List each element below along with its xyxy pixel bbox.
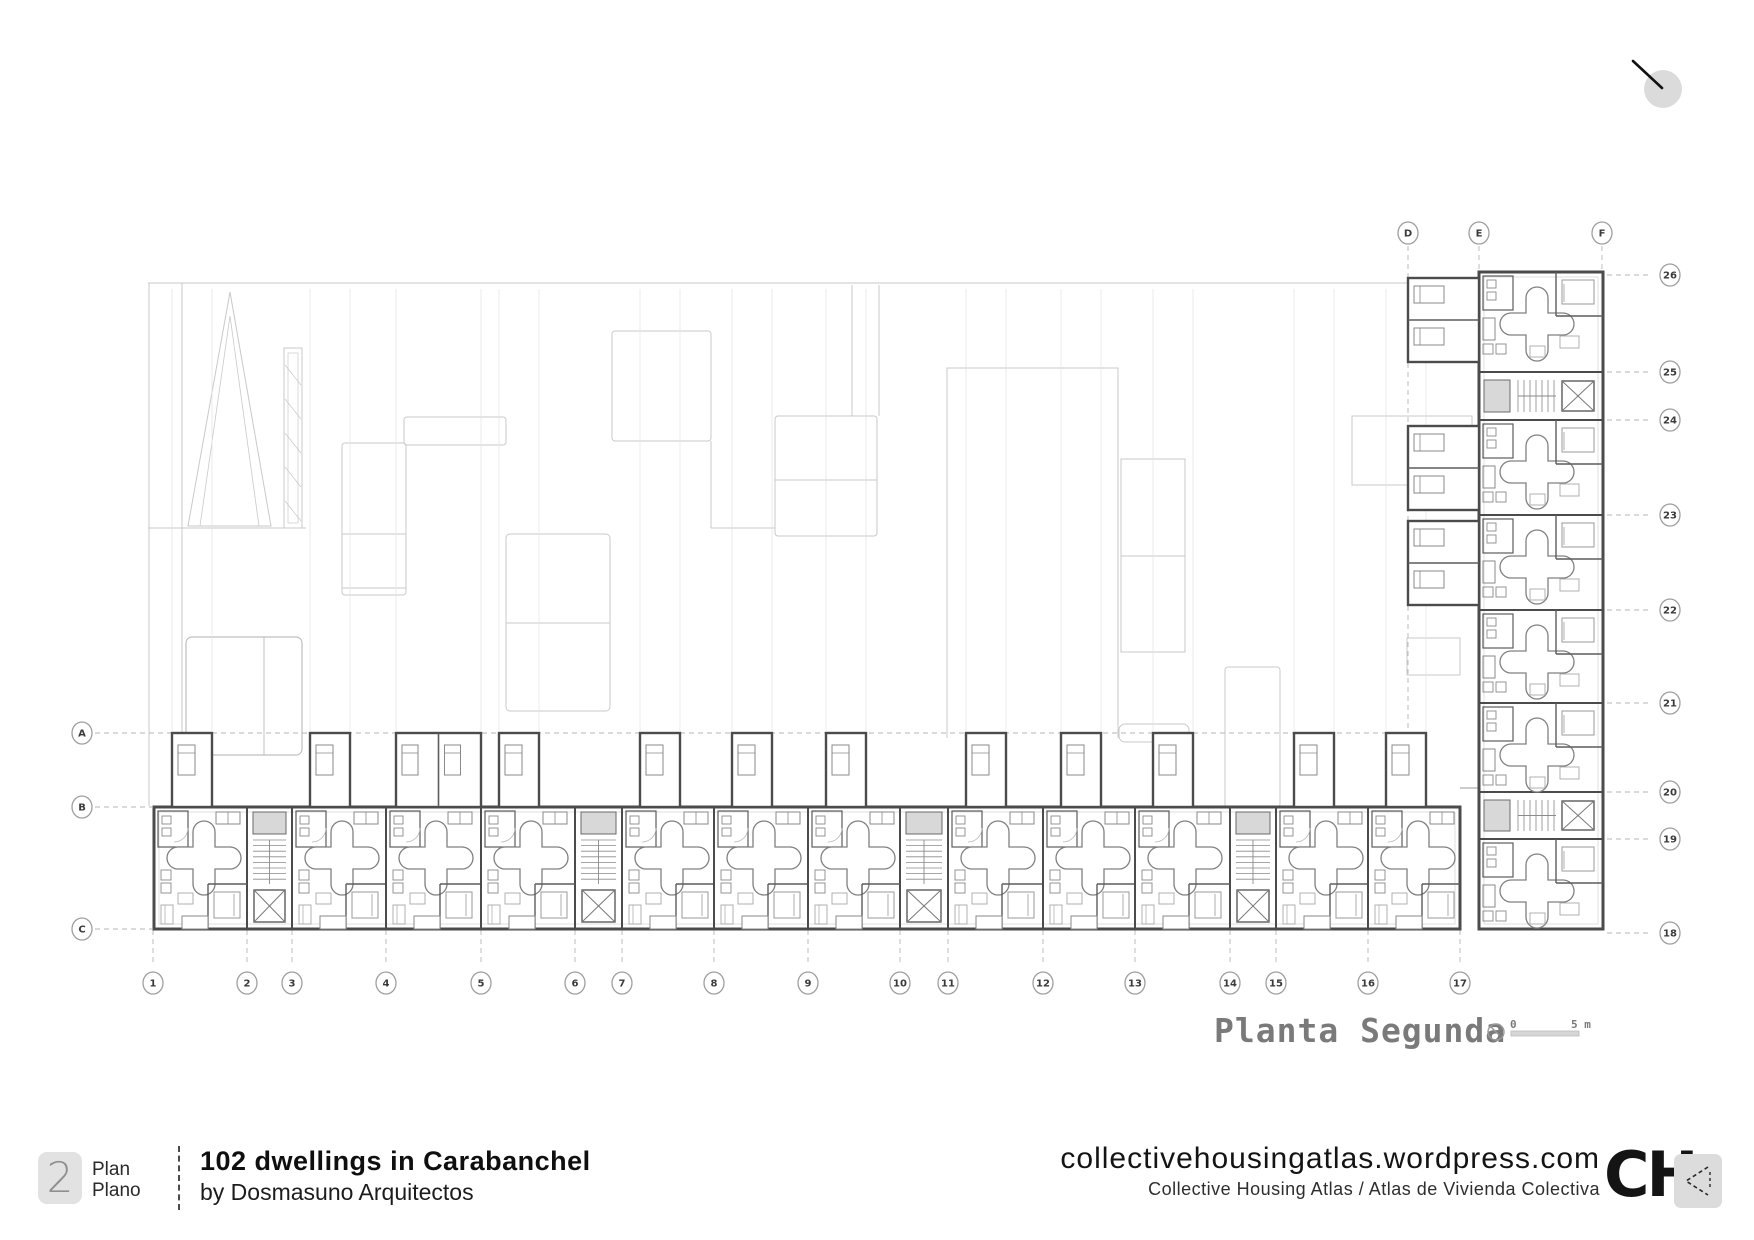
plan-number-badge: 2 [38, 1152, 82, 1204]
grid-bubble: E [1469, 222, 1489, 244]
grid-bubble: 21 [1660, 692, 1680, 714]
grid-bubble: 1 [143, 972, 163, 994]
svg-text:7: 7 [619, 979, 626, 990]
svg-text:4: 4 [383, 979, 390, 990]
upper-floor-outline [148, 283, 1472, 807]
svg-text:D: D [1404, 229, 1412, 240]
floor-plan-drawing: 1234567891011121314151617ABCDEF262524232… [0, 0, 1754, 1240]
grid-bubble: 13 [1125, 972, 1145, 994]
svg-text:24: 24 [1663, 416, 1677, 427]
svg-text:E: E [1476, 229, 1483, 240]
grid-bubble: 20 [1660, 781, 1680, 803]
svg-text:21: 21 [1663, 699, 1677, 710]
grid-bubble: 15 [1266, 972, 1286, 994]
site-subtitle: Collective Housing Atlas / Atlas de Vivi… [880, 1179, 1600, 1200]
scale-bar-rect [1511, 1031, 1579, 1036]
page: 1234567891011121314151617ABCDEF262524232… [0, 0, 1754, 1240]
grid-bubble: A [72, 722, 92, 744]
svg-text:10: 10 [893, 979, 907, 990]
svg-text:14: 14 [1223, 979, 1237, 990]
svg-text:F: F [1599, 229, 1606, 240]
grid-bubble: C [72, 918, 92, 940]
svg-text:5: 5 [478, 979, 485, 990]
grid-bubble: 6 [565, 972, 585, 994]
site-block: collectivehousingatlas.wordpress.com Col… [880, 1142, 1600, 1200]
grid-bubble: 8 [704, 972, 724, 994]
svg-text:16: 16 [1361, 979, 1375, 990]
svg-text:2: 2 [244, 979, 251, 990]
plan-label-en: Plan [92, 1160, 141, 1181]
svg-text:6: 6 [572, 979, 579, 990]
svg-text:3: 3 [289, 979, 296, 990]
chevron-left-icon[interactable] [1674, 1154, 1722, 1208]
svg-text:20: 20 [1663, 788, 1677, 799]
grid-bubble: 5 [471, 972, 491, 994]
svg-text:22: 22 [1663, 606, 1677, 617]
svg-text:C: C [78, 925, 85, 936]
grid-bubble: 4 [376, 972, 396, 994]
scale-start-label: 0 [1510, 1018, 1517, 1031]
plan-title: Planta Segunda [1214, 1011, 1506, 1050]
project-byline: by Dosmasuno Arquitectos [200, 1179, 591, 1206]
grid-bubble: 12 [1033, 972, 1053, 994]
grid-bubble: 24 [1660, 409, 1680, 431]
grid-bubble: 11 [938, 972, 958, 994]
grid-bubble: D [1398, 222, 1418, 244]
scale-end-label: 5 m [1571, 1018, 1591, 1031]
plan-labels: Plan Plano [92, 1160, 141, 1201]
grid-bubble: 17 [1450, 972, 1470, 994]
svg-text:23: 23 [1663, 511, 1677, 522]
grid-bubble: 25 [1660, 361, 1680, 383]
svg-text:9: 9 [805, 979, 812, 990]
grid-bubble: 23 [1660, 504, 1680, 526]
grid-bubble: 26 [1660, 264, 1680, 286]
svg-text:26: 26 [1663, 271, 1677, 282]
svg-text:19: 19 [1663, 835, 1677, 846]
svg-text:8: 8 [711, 979, 718, 990]
grid-bubble: 9 [798, 972, 818, 994]
svg-text:1: 1 [150, 979, 157, 990]
grid-bubble: 14 [1220, 972, 1240, 994]
grid-bubble: 3 [282, 972, 302, 994]
svg-text:15: 15 [1269, 979, 1283, 990]
svg-text:B: B [78, 803, 86, 814]
plan-label-es: Plano [92, 1181, 141, 1202]
site-url[interactable]: collectivehousingatlas.wordpress.com [880, 1142, 1600, 1176]
svg-text:11: 11 [941, 979, 955, 990]
plan-title-group: Planta Segunda 0 5 m [1214, 1011, 1591, 1050]
grid-bubble: 10 [890, 972, 910, 994]
plan-number: 2 [47, 1153, 74, 1202]
grid-bubble: 18 [1660, 922, 1680, 944]
svg-text:25: 25 [1663, 368, 1677, 379]
footer: 2 Plan Plano 102 dwellings in Carabanche… [0, 1128, 1754, 1240]
grid-bubble: 2 [237, 972, 257, 994]
footer-divider [178, 1146, 180, 1210]
svg-text:13: 13 [1128, 979, 1142, 990]
svg-text:12: 12 [1036, 979, 1050, 990]
svg-text:18: 18 [1663, 929, 1677, 940]
cursor-icon[interactable] [1633, 61, 1682, 108]
svg-text:17: 17 [1453, 979, 1467, 990]
svg-text:A: A [78, 729, 86, 740]
chevron-left-shape [1686, 1167, 1708, 1195]
project-block: 102 dwellings in Carabanchel by Dosmasun… [200, 1146, 591, 1206]
grid-bubble: 16 [1358, 972, 1378, 994]
grid-bubble: F [1592, 222, 1612, 244]
project-title: 102 dwellings in Carabanchel [200, 1146, 591, 1177]
grid-bubble: 19 [1660, 828, 1680, 850]
grid-bubble: B [72, 796, 92, 818]
grid-bubble: 22 [1660, 599, 1680, 621]
grid-bubble: 7 [612, 972, 632, 994]
